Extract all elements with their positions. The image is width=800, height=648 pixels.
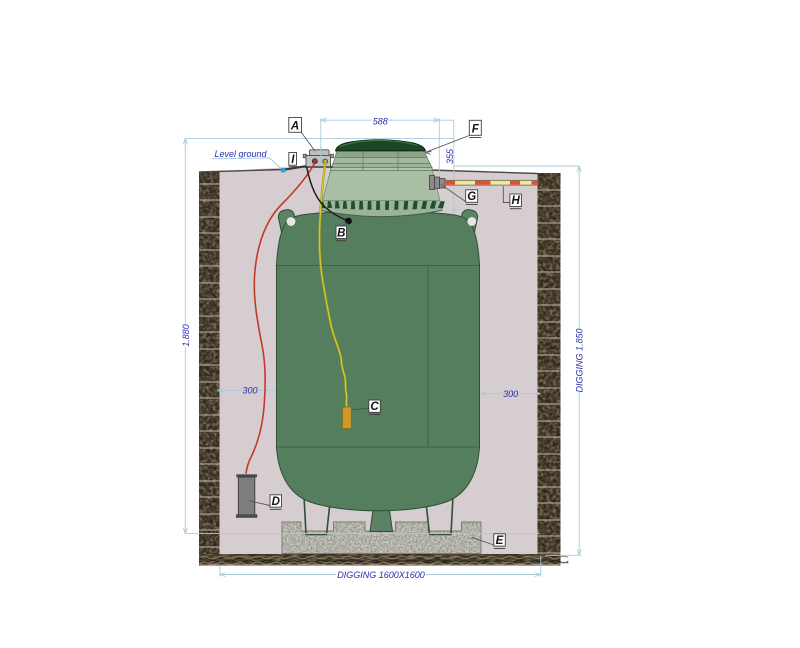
svg-text:H: H <box>512 195 521 207</box>
svg-text:300: 300 <box>242 386 257 396</box>
svg-text:G: G <box>467 191 476 203</box>
svg-text:A: A <box>290 121 299 133</box>
svg-text:E: E <box>496 535 504 547</box>
svg-text:DIGGING 1.850: DIGGING 1.850 <box>574 328 584 392</box>
svg-text:588: 588 <box>373 117 388 127</box>
svg-text:355: 355 <box>445 148 455 164</box>
svg-text:F: F <box>472 123 480 135</box>
svg-text:C: C <box>370 401 379 413</box>
svg-text:B: B <box>337 227 345 239</box>
svg-text:1.880: 1.880 <box>181 324 191 347</box>
svg-text:D: D <box>272 496 280 508</box>
svg-text:DIGGING 1600X1600: DIGGING 1600X1600 <box>337 570 425 580</box>
svg-text:300: 300 <box>503 389 518 399</box>
svg-text:Level ground: Level ground <box>215 149 268 159</box>
